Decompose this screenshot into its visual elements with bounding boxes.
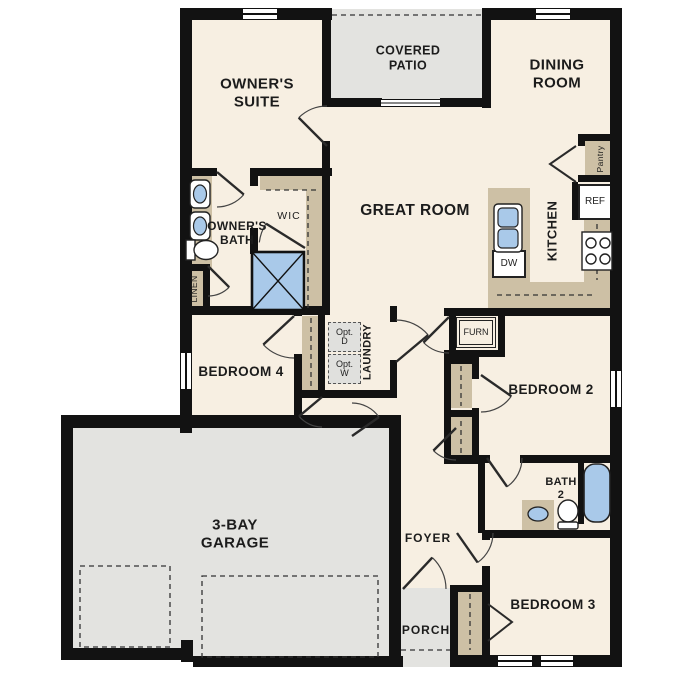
door-owners-suite-leaf [299,118,327,146]
door-bath2-arc [507,458,522,487]
door-bedroom2-leaf [481,375,511,396]
room-label-owners-suite: OWNER'S SUITE [220,75,294,110]
door-furnace-closet-arc [424,343,450,354]
bath2-toilet-bowl [558,500,578,522]
room-label-foyer: FOYER [405,531,451,545]
door-laundry-leaf [396,335,428,362]
cooktop [582,232,612,270]
room-label-laundry: LAUNDRY [362,324,375,380]
fixtures-layer [0,0,687,687]
door-bedroom3-arc [478,533,493,563]
door-bedroom4-arc [263,345,294,358]
room-label-pantry: Pantry [595,146,605,173]
room-label-dining-room: DINING ROOM [530,56,585,91]
room-label-linen: LINEN [189,275,199,302]
door-wic-leaf [266,224,305,248]
door-front-entry-arc [432,558,446,589]
door-linen-leaf [208,266,229,287]
door-bath2-leaf [487,458,507,487]
door-hall-1-leaf [299,397,322,416]
door-owners-bath-arc [217,195,244,208]
bath2-tub [584,464,610,522]
garage-door-2 [202,576,378,657]
door-hall-closet-arc [433,451,456,460]
door-hall-closet-leaf [433,428,456,451]
room-label-bedroom3: BEDROOM 3 [510,597,595,613]
kitchen-sink-basin-2 [498,229,518,248]
bath2-sink [528,507,548,521]
door-hall-2-arc [352,403,379,417]
room-label-covered-patio: COVERED PATIO [376,43,441,73]
floor-plan: REF DW Opt. D Opt. W FURN [0,0,687,687]
door-owners-bath-leaf [217,172,244,195]
door-laundry-arc [396,320,428,335]
door-bedroom3-leaf [457,533,478,563]
door-front-entry-leaf [403,558,432,589]
furnace-label: FURN [464,328,489,337]
room-label-great-room: GREAT ROOM [360,202,470,220]
bedroom3-closet-door [488,604,512,641]
room-label-bedroom4: BEDROOM 4 [198,364,283,380]
door-bedroom2-arc [481,396,511,412]
door-furnace-closet-leaf [424,317,450,343]
room-label-porch: PORCH [402,623,450,637]
kitchen-sink-basin-1 [498,208,518,227]
door-hall-2-leaf [352,417,379,436]
door-owners-suite-arc [299,106,327,118]
door-linen-arc [208,287,229,296]
owners-bath-sink-2 [194,217,207,235]
door-bedroom4-leaf [263,316,294,345]
room-label-bedroom2: BEDROOM 2 [508,382,593,398]
room-label-wic: WIC [277,210,300,222]
room-label-bath2: BATH 2 [545,476,576,502]
furnace-box: FURN [459,320,493,345]
owners-bath-sink-1 [194,185,207,203]
room-label-kitchen: KITCHEN [544,201,559,262]
dashed-lines [80,15,597,657]
pantry-door [550,146,576,182]
door-hall-1-arc [299,416,322,427]
room-label-garage: 3-BAY GARAGE [201,516,269,551]
garage-door-1 [80,566,170,647]
room-label-owners-bath: OWNER'S BATH [207,219,267,247]
bath2-toilet-tank [558,522,578,529]
